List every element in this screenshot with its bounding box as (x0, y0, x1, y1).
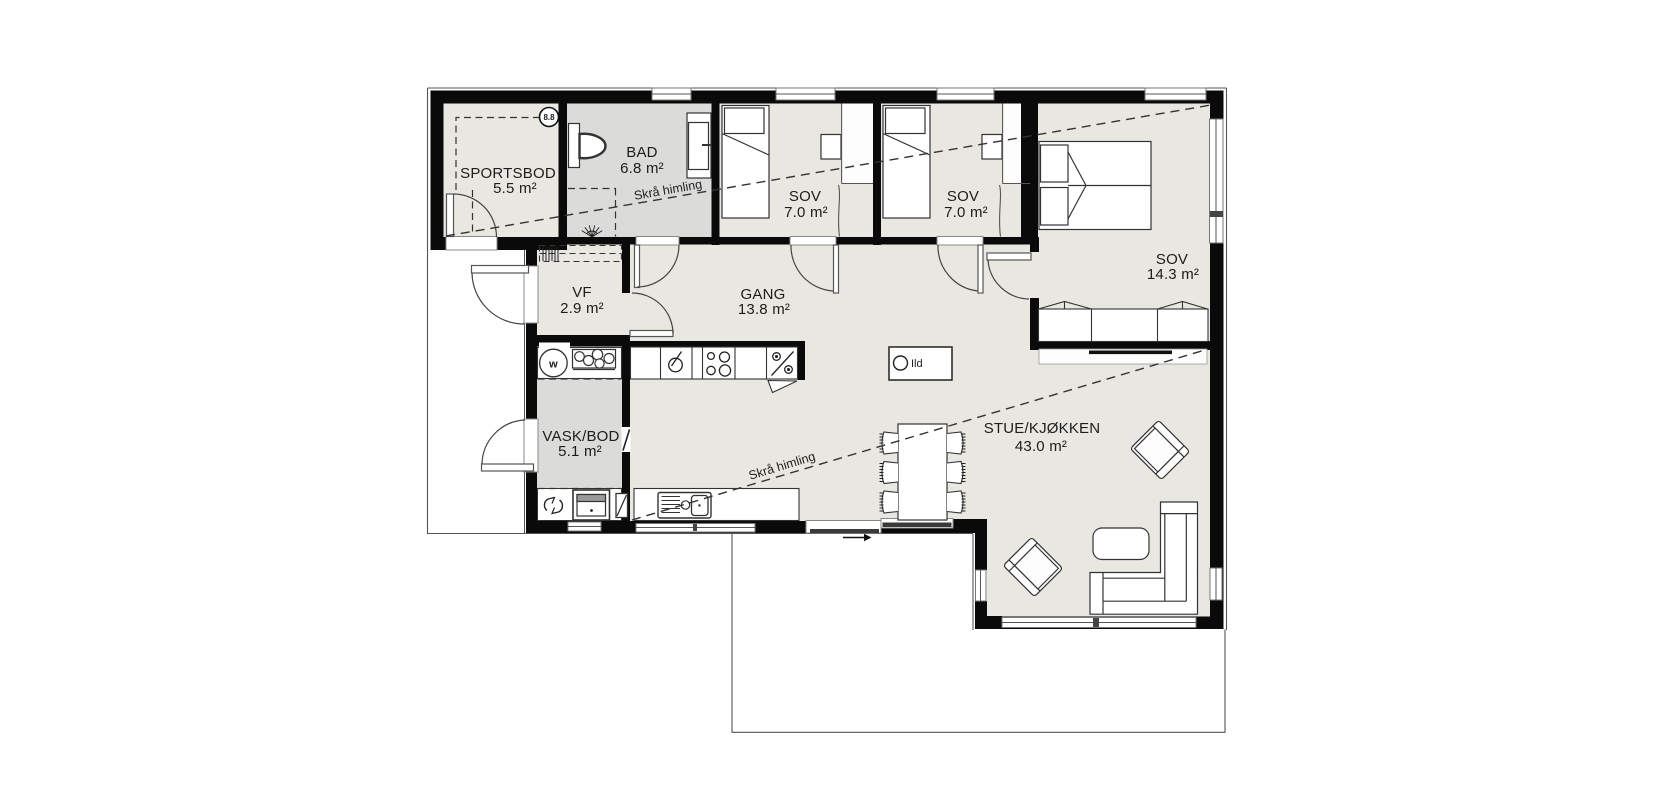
svg-text:5.5 m²: 5.5 m² (493, 180, 537, 197)
svg-text:SOV: SOV (947, 188, 979, 205)
svg-text:7.0 m²: 7.0 m² (784, 204, 828, 221)
svg-text:Ild: Ild (911, 358, 923, 370)
svg-text:SOV: SOV (789, 188, 821, 205)
svg-text:6.8 m²: 6.8 m² (620, 160, 664, 177)
svg-text:w: w (548, 359, 558, 371)
svg-text:7.0 m²: 7.0 m² (944, 204, 988, 221)
svg-text:BAD: BAD (626, 144, 657, 161)
svg-text:2.9 m²: 2.9 m² (560, 300, 604, 317)
svg-text:8.8: 8.8 (543, 113, 555, 122)
svg-text:5.1 m²: 5.1 m² (558, 443, 602, 460)
svg-text:43.0 m²: 43.0 m² (1015, 438, 1067, 455)
svg-text:14.3 m²: 14.3 m² (1147, 266, 1199, 283)
svg-text:13.8 m²: 13.8 m² (738, 301, 790, 318)
svg-text:STUE/KJØKKEN: STUE/KJØKKEN (984, 420, 1101, 437)
svg-text:VF: VF (572, 284, 592, 301)
